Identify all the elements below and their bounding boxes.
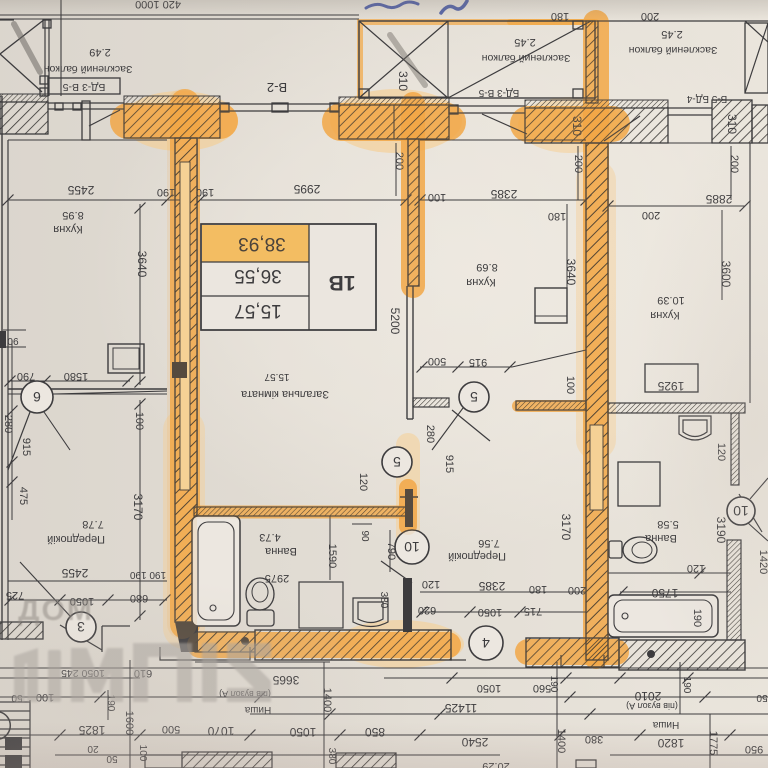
svg-text:200: 200 bbox=[572, 155, 584, 173]
svg-text:90: 90 bbox=[7, 335, 19, 346]
svg-text:7.78: 7.78 bbox=[82, 518, 103, 530]
svg-text:5200: 5200 bbox=[388, 308, 402, 335]
svg-text:100: 100 bbox=[428, 191, 446, 203]
svg-text:310: 310 bbox=[396, 71, 410, 91]
svg-text:2975: 2975 bbox=[265, 572, 289, 584]
svg-text:3170: 3170 bbox=[131, 494, 145, 521]
svg-text:15,57: 15,57 bbox=[234, 300, 282, 321]
svg-text:Засклений балкон: Засклений балкон bbox=[43, 63, 132, 75]
svg-text:190: 190 bbox=[196, 186, 214, 198]
svg-text:7.56: 7.56 bbox=[478, 537, 499, 549]
svg-text:3640: 3640 bbox=[135, 251, 149, 278]
svg-text:8.69: 8.69 bbox=[476, 261, 497, 273]
svg-text:3640: 3640 bbox=[564, 259, 578, 286]
svg-text:Засклений балкон: Засклений балкон bbox=[628, 44, 717, 56]
svg-text:Загальна кімната: Загальна кімната bbox=[240, 388, 329, 400]
svg-text:2385: 2385 bbox=[490, 187, 517, 201]
svg-text:Засклений балкон: Засклений балкон bbox=[481, 52, 570, 64]
svg-text:475: 475 bbox=[17, 487, 29, 505]
svg-text:120: 120 bbox=[357, 473, 369, 491]
svg-text:915: 915 bbox=[20, 438, 32, 456]
svg-text:1590: 1590 bbox=[326, 544, 338, 568]
svg-text:В-2: В-2 bbox=[267, 80, 287, 95]
svg-text:90: 90 bbox=[359, 530, 370, 542]
svg-text:4.73: 4.73 bbox=[259, 531, 280, 543]
svg-text:Ванна: Ванна bbox=[264, 545, 297, 557]
svg-text:200: 200 bbox=[642, 209, 660, 221]
svg-text:180: 180 bbox=[548, 210, 566, 222]
svg-text:11425: 11425 bbox=[444, 701, 477, 715]
svg-text:620: 620 bbox=[418, 604, 436, 616]
svg-text:2995: 2995 bbox=[293, 182, 320, 196]
svg-text:Передпокій: Передпокій bbox=[47, 533, 105, 545]
svg-text:100: 100 bbox=[564, 376, 576, 394]
svg-text:2455: 2455 bbox=[67, 183, 94, 197]
svg-text:1В: 1В bbox=[329, 271, 356, 294]
svg-text:3170: 3170 bbox=[559, 514, 573, 541]
svg-text:(пів вузол А): (пів вузол А) bbox=[626, 701, 678, 711]
svg-text:380: 380 bbox=[378, 592, 389, 609]
svg-text:1050: 1050 bbox=[477, 682, 501, 694]
svg-text:8.95: 8.95 bbox=[62, 209, 83, 221]
svg-text:915: 915 bbox=[469, 356, 487, 368]
svg-text:Кухня: Кухня bbox=[53, 223, 82, 235]
svg-text:БД-3 В-5: БД-3 В-5 bbox=[478, 87, 519, 98]
svg-text:10: 10 bbox=[404, 539, 420, 555]
svg-text:500: 500 bbox=[428, 355, 446, 367]
svg-text:Передпокій: Передпокій bbox=[448, 550, 506, 562]
svg-text:БД-3 В-5: БД-3 В-5 bbox=[63, 81, 106, 93]
svg-text:2.45: 2.45 bbox=[661, 28, 682, 40]
svg-text:915: 915 bbox=[443, 455, 455, 473]
svg-text:715: 715 bbox=[524, 605, 542, 617]
svg-text:4: 4 bbox=[482, 635, 490, 651]
svg-text:280: 280 bbox=[2, 415, 14, 433]
svg-text:2.45: 2.45 bbox=[514, 36, 535, 48]
svg-text:Кухня: Кухня bbox=[466, 276, 495, 288]
svg-text:2.49: 2.49 bbox=[89, 46, 110, 58]
svg-text:6: 6 bbox=[33, 389, 41, 405]
svg-text:280: 280 bbox=[424, 425, 436, 443]
svg-text:36,55: 36,55 bbox=[234, 265, 282, 286]
svg-text:120: 120 bbox=[422, 578, 440, 590]
svg-text:15.57: 15.57 bbox=[264, 371, 289, 382]
svg-text:1050: 1050 bbox=[478, 606, 502, 618]
svg-text:100: 100 bbox=[133, 412, 145, 430]
svg-text:190: 190 bbox=[548, 676, 559, 693]
svg-text:38,93: 38,93 bbox=[238, 233, 286, 254]
svg-text:790: 790 bbox=[17, 370, 35, 382]
svg-text:790: 790 bbox=[385, 542, 397, 560]
svg-text:5: 5 bbox=[393, 454, 401, 470]
svg-text:2010: 2010 bbox=[634, 689, 661, 703]
svg-text:5: 5 bbox=[470, 389, 478, 405]
svg-text:2385: 2385 bbox=[478, 579, 505, 593]
svg-text:1580: 1580 bbox=[64, 370, 88, 382]
svg-text:180: 180 bbox=[529, 583, 547, 595]
